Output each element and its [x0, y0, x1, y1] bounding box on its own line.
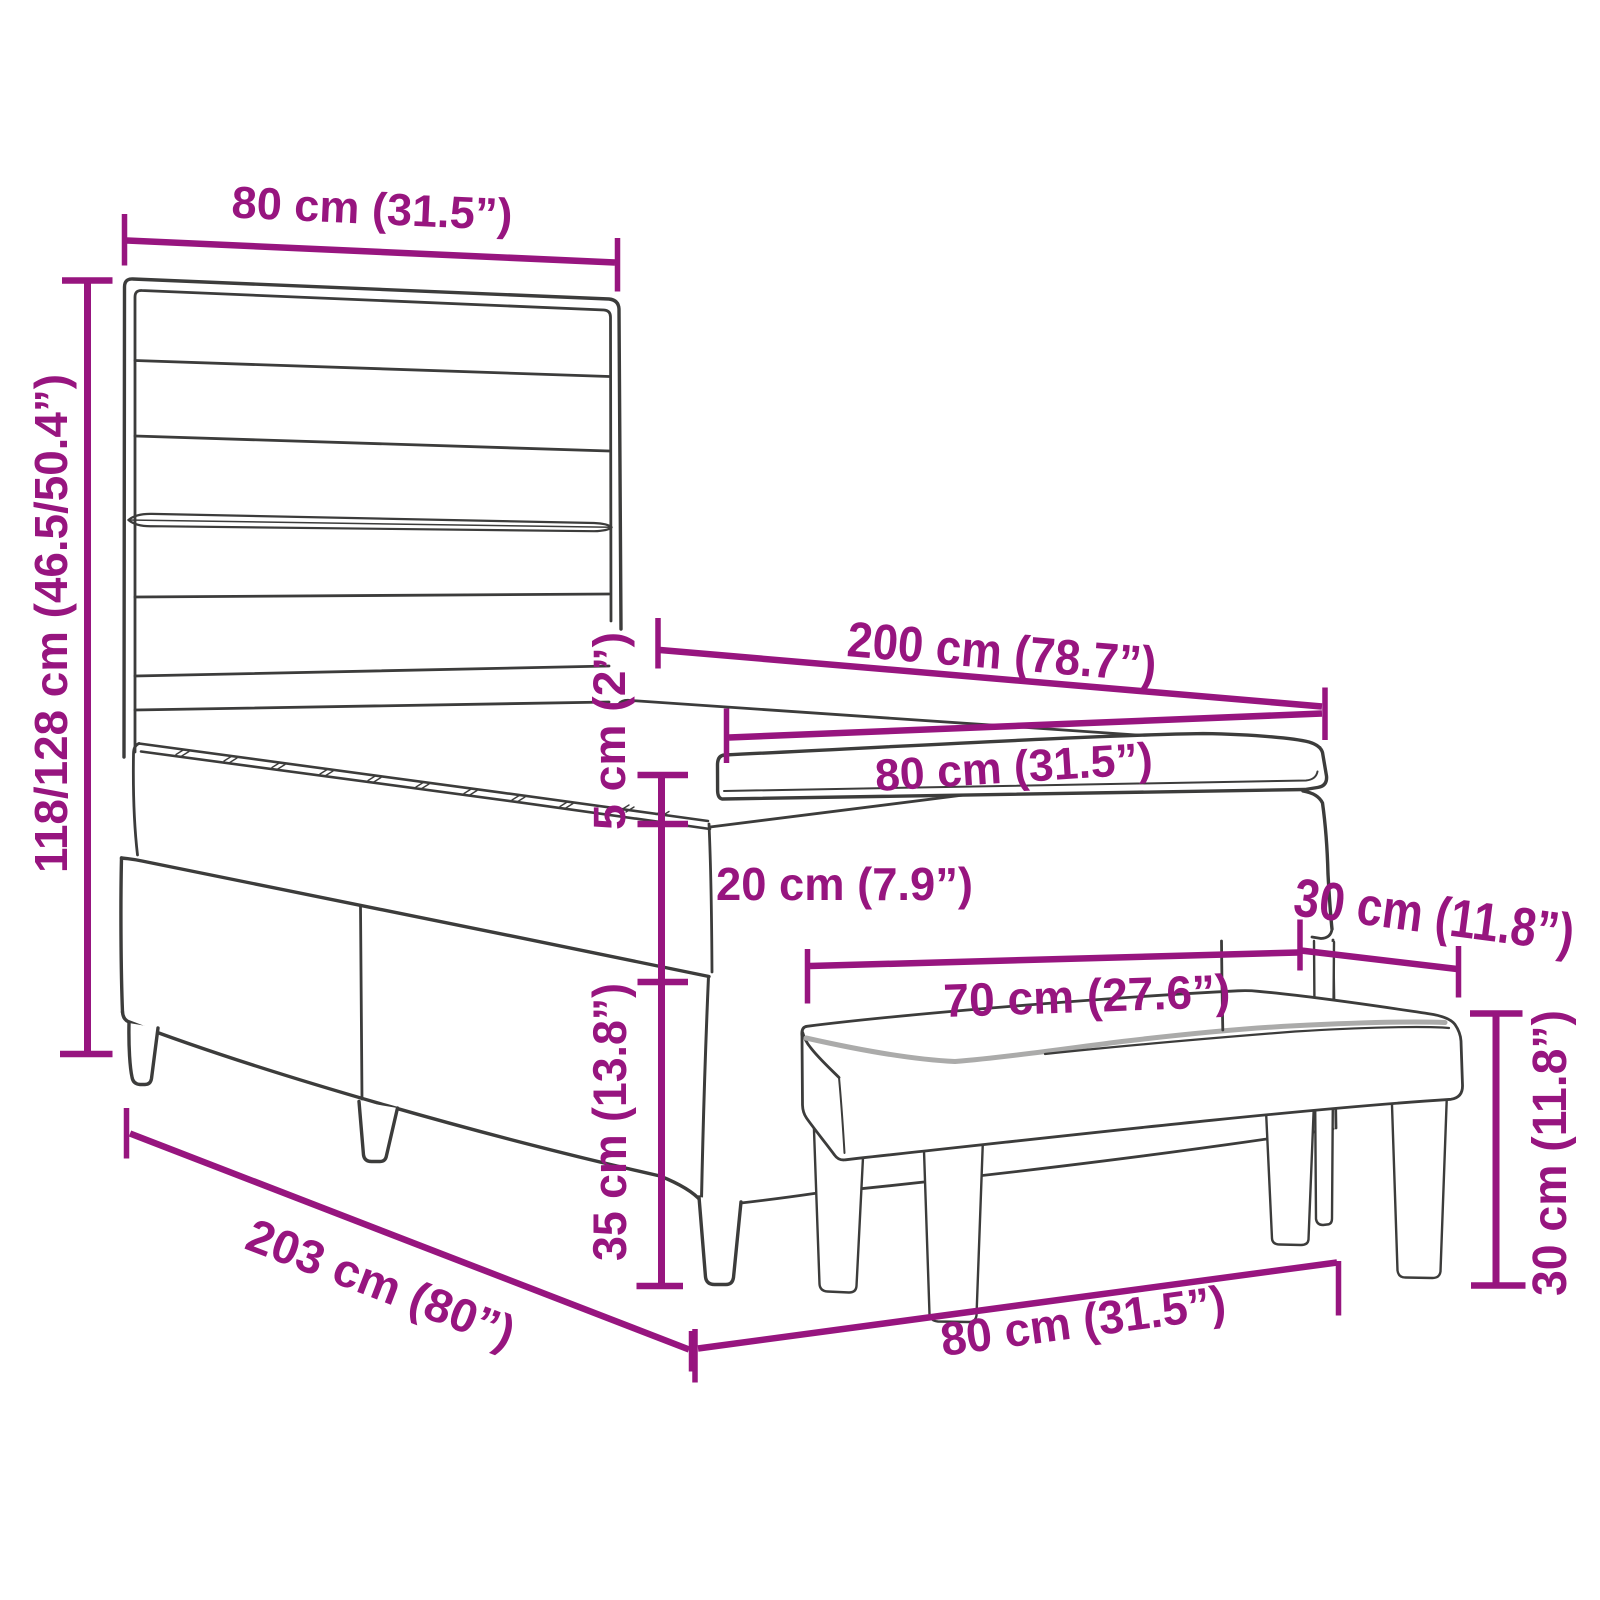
svg-text:118/128 cm (46.5/50.4”): 118/128 cm (46.5/50.4”)	[25, 374, 77, 873]
svg-text:30 cm (11.8”): 30 cm (11.8”)	[1524, 1010, 1577, 1296]
svg-text:20 cm (7.9”): 20 cm (7.9”)	[716, 858, 973, 910]
svg-text:35 cm (13.8”): 35 cm (13.8”)	[583, 983, 636, 1261]
svg-text:5 cm (2”): 5 cm (2”)	[584, 632, 635, 830]
svg-text:70 cm (27.6”): 70 cm (27.6”)	[942, 964, 1231, 1027]
